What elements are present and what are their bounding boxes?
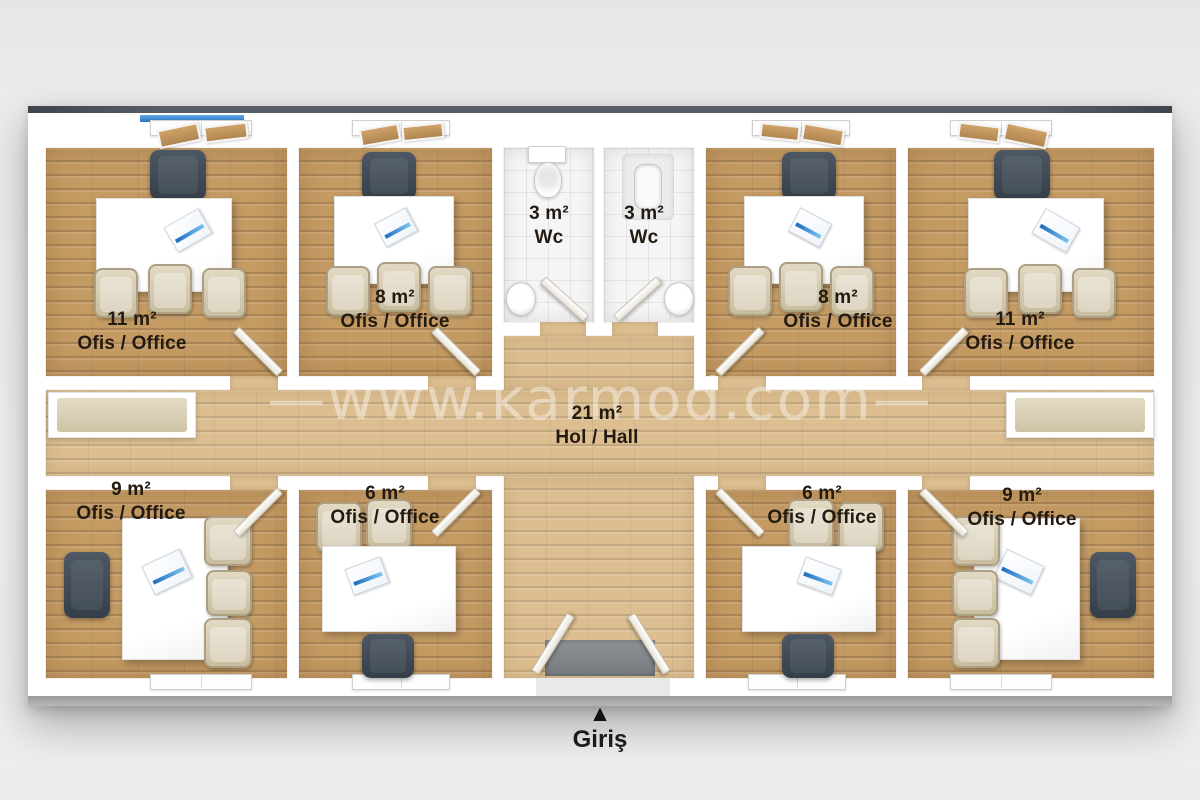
sink [664, 282, 694, 316]
room-area: 6 m² [310, 482, 460, 506]
entrance-mat [545, 640, 655, 676]
room-area: 9 m² [947, 484, 1097, 508]
room-label-office-8-top-right: 8 m² Ofis / Office [763, 286, 913, 334]
office-chair [64, 552, 110, 618]
door-threshold [230, 376, 278, 390]
room-type: Ofis / Office [320, 310, 470, 334]
room-area: 8 m² [763, 286, 913, 310]
desk [322, 546, 456, 632]
wc-left-door-threshold [540, 322, 586, 336]
room-type: Wc [589, 226, 699, 250]
door-threshold [718, 376, 766, 390]
toilet-bowl [534, 162, 562, 198]
office-chair [994, 150, 1050, 200]
window-frame [150, 674, 252, 690]
room-type: Wc [494, 226, 604, 250]
wc-right-door-threshold [612, 322, 658, 336]
room-type: Ofis / Office [56, 502, 206, 526]
window-frame [950, 674, 1052, 690]
room-label-office-9-bottom-right: 9 m² Ofis / Office [947, 484, 1097, 532]
room-label-office-9-bottom-left: 9 m² Ofis / Office [56, 478, 206, 526]
office-chair [362, 634, 414, 678]
room-label-office-6-bottom-right: 6 m² Ofis / Office [747, 482, 897, 530]
room-area: 3 m² [589, 202, 699, 226]
guest-chair [952, 618, 1000, 668]
sink [506, 282, 536, 316]
guest-chair [204, 618, 252, 668]
door-threshold [922, 376, 970, 390]
room-label-hall: 21 m² Hol / Hall [522, 402, 672, 450]
room-label-office-11-top-right: 11 m² Ofis / Office [945, 308, 1095, 356]
room-area: 11 m² [945, 308, 1095, 332]
office-chair [362, 152, 416, 200]
room-type: Ofis / Office [945, 332, 1095, 356]
office-chair [1090, 552, 1136, 618]
room-label-office-8-top-left: 8 m² Ofis / Office [320, 286, 470, 334]
door-threshold [428, 376, 476, 390]
guest-chair [952, 570, 998, 616]
entrance-arrow-icon: ▲ [540, 702, 660, 725]
room-type: Ofis / Office [947, 508, 1097, 532]
guest-chair [206, 570, 252, 616]
hall-floor-upper [504, 336, 694, 390]
entrance-doorway [533, 678, 673, 696]
building-top-edge [28, 106, 1172, 113]
room-label-wc-right: 3 m² Wc [589, 202, 699, 250]
door-threshold [230, 476, 278, 490]
room-type: Hol / Hall [522, 426, 672, 450]
office-chair [782, 634, 834, 678]
room-type: Ofis / Office [747, 506, 897, 530]
room-area: 3 m² [494, 202, 604, 226]
room-area: 6 m² [747, 482, 897, 506]
room-label-office-11-top-left: 11 m² Ofis / Office [57, 308, 207, 356]
guest-chair [148, 264, 192, 314]
office-chair [150, 150, 206, 200]
room-area: 8 m² [320, 286, 470, 310]
hall-bench-left [48, 392, 196, 438]
room-type: Ofis / Office [763, 310, 913, 334]
toilet-tank [528, 146, 566, 163]
room-area: 9 m² [56, 478, 206, 502]
room-type: Ofis / Office [310, 506, 460, 530]
hall-bench-right [1006, 392, 1154, 438]
guest-chair [1018, 264, 1062, 314]
room-area: 11 m² [57, 308, 207, 332]
room-label-office-6-bottom-left: 6 m² Ofis / Office [310, 482, 460, 530]
office-chair [782, 152, 836, 200]
floorplan-canvas: —www.karmod.com— 11 m² Ofis / Office 8 m… [0, 0, 1200, 800]
room-area: 21 m² [522, 402, 672, 426]
room-type: Ofis / Office [57, 332, 207, 356]
room-label-wc-left: 3 m² Wc [494, 202, 604, 250]
guest-chair [202, 268, 246, 318]
entrance-label: Giriş [540, 726, 660, 755]
